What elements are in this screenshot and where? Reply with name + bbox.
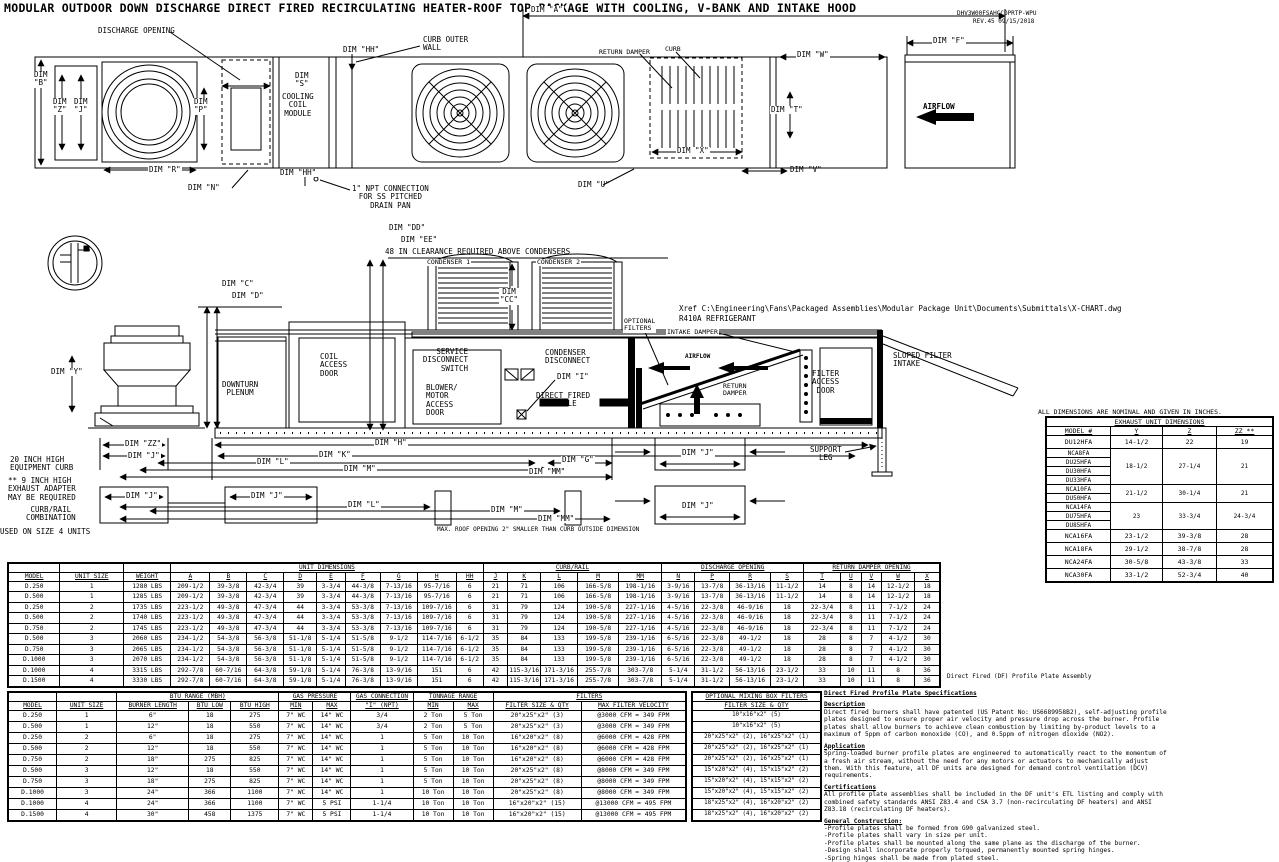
table-cell: 6-1/2 xyxy=(456,644,483,655)
table-cell: 30-1/4 xyxy=(1163,485,1217,503)
table-cell: 109-7/16 xyxy=(417,623,456,634)
table-cell: 7 xyxy=(861,655,882,666)
sloped-filter-intake xyxy=(883,336,1018,396)
table-cell: 79 xyxy=(508,623,541,634)
table-cell: 190-5/8 xyxy=(578,613,619,624)
table-row: 15"x20"x2" (4), 15"x15"x2" (2) xyxy=(693,787,821,798)
table-cell: 239-1/16 xyxy=(619,634,662,645)
table-cell: 18 xyxy=(771,613,804,624)
exhaust-fan-elevation xyxy=(88,326,205,428)
table-cell: 8 xyxy=(841,623,862,634)
table-row: 15"x20"x2" (4), 15"x15"x2" (2) xyxy=(693,776,821,787)
table-cell: 3 xyxy=(57,776,117,787)
table-cell: 227-1/16 xyxy=(619,602,662,613)
column-header: A xyxy=(171,573,210,582)
table-cell: 33-1/2 xyxy=(1111,569,1163,582)
column-group-header: FILTERS xyxy=(493,693,685,702)
table-cell: 1 xyxy=(351,776,413,787)
table-cell: 28 xyxy=(804,644,841,655)
column-header: MAX xyxy=(453,701,493,710)
table-cell: @8000 CFM = 349 FPM xyxy=(581,765,685,776)
table-cell: 6 xyxy=(456,665,483,676)
table-cell: 24" xyxy=(117,798,189,809)
table-cell: 166-5/8 xyxy=(578,581,619,592)
table-cell: 23-1/2 xyxy=(771,676,804,687)
column-header: F xyxy=(345,573,380,582)
column-header: MIN xyxy=(413,701,453,710)
table-cell: 14 xyxy=(861,581,882,592)
table-cell: 33 xyxy=(804,665,841,676)
table-cell: 49-3/8 xyxy=(210,623,247,634)
table-cell: 2065 LBS xyxy=(124,644,171,655)
table-cell: 114-7/16 xyxy=(417,644,456,655)
model-cell: DU25HFA xyxy=(1047,458,1111,467)
table-cell: 239-1/16 xyxy=(619,655,662,666)
table-cell: 51-1/8 xyxy=(284,655,317,666)
table-cell: 3330 LBS xyxy=(124,676,171,687)
table-cell: 42 xyxy=(483,665,508,676)
table-cell: 5 Ton xyxy=(413,743,453,754)
column-group-header: GAS PRESSURE xyxy=(279,693,351,702)
table-cell: D.250 xyxy=(9,581,60,592)
column-header: MODEL xyxy=(9,573,60,582)
table-cell: 44-3/8 xyxy=(345,592,380,603)
table-cell: 9-1/2 xyxy=(380,634,417,645)
table-cell: @6000 CFM = 428 FPM xyxy=(581,732,685,743)
table-cell: 4-5/16 xyxy=(662,613,695,624)
table-cell: 42-3/4 xyxy=(247,581,284,592)
table-cell: 22-3/8 xyxy=(695,613,730,624)
table-cell: 234-1/2 xyxy=(171,655,210,666)
table-cell: 23-1/2 xyxy=(771,665,804,676)
table-cell: 7-13/16 xyxy=(380,592,417,603)
table-cell: 46-9/16 xyxy=(730,602,771,613)
curb-dimensions xyxy=(100,438,868,480)
table-cell: D.500 xyxy=(9,721,57,732)
model-cell: NCA8FA xyxy=(1047,449,1111,458)
table-cell: 31-1/2 xyxy=(695,676,730,687)
table-cell: 10 Ton xyxy=(453,754,493,765)
table-cell: 151 xyxy=(417,665,456,676)
table-row: D.75032065 LBS234-1/254-3/856-3/851-1/85… xyxy=(9,644,940,655)
table-cell: 124 xyxy=(541,623,578,634)
table-row: NCA30FA33-1/252-3/440 xyxy=(1047,569,1273,582)
table-cell: 18 xyxy=(189,732,231,743)
table-cell: 15"x20"x2" (4), 15"x15"x2" (2) xyxy=(693,776,821,787)
table-cell: D.1000 xyxy=(9,665,60,676)
table-cell: 21 xyxy=(1217,449,1273,485)
table-cell: 18 xyxy=(771,623,804,634)
table-row: 18"x25"x2" (4), 16"x20"x2" (2) xyxy=(693,798,821,809)
table-cell: 7" WC xyxy=(279,732,313,743)
table-cell: 30-5/8 xyxy=(1111,556,1163,569)
table-cell: 36 xyxy=(914,676,939,687)
table-cell: D.1000 xyxy=(9,655,60,666)
condenser-disconnect xyxy=(521,369,534,380)
table-cell: 3-3/4 xyxy=(317,602,346,613)
table-cell: 24 xyxy=(914,623,939,634)
table-cell: 16"x20"x2" (15) xyxy=(493,798,581,809)
table-cell: D.500 xyxy=(9,634,60,645)
specs-application-heading: Application xyxy=(824,743,1169,750)
table-row: NCA18FA29-1/238-7/828 xyxy=(1047,543,1273,556)
blower-access-door xyxy=(413,350,501,424)
table-cell: 56-3/8 xyxy=(247,655,284,666)
table-cell: 4-1/2 xyxy=(882,634,915,645)
table-cell: 275 xyxy=(231,732,279,743)
model-cell: NCA18FA xyxy=(1047,543,1111,556)
table-title: EXHAUST UNIT DIMENSIONS xyxy=(1047,418,1273,427)
specs-application-body: Spring-loaded burner profile plates are … xyxy=(824,750,1169,780)
table-cell: 1-1/4 xyxy=(351,809,413,820)
table-row: D.500212"185507" WC14" WC15 Ton10 Ton16"… xyxy=(9,743,686,754)
table-cell: 11 xyxy=(861,665,882,676)
cad-sheet: MODULAR OUTDOOR DOWN DISCHARGE DIRECT FI… xyxy=(0,0,1279,843)
table-cell: 292-7/8 xyxy=(171,676,210,687)
table-cell: 5 Ton xyxy=(413,754,453,765)
table-cell: 39-3/8 xyxy=(210,581,247,592)
table-cell: 54-3/8 xyxy=(210,644,247,655)
model-cell: DU50HFA xyxy=(1047,494,1111,503)
table-cell: 60-7/16 xyxy=(210,676,247,687)
table-cell: 9-1/2 xyxy=(380,644,417,655)
table-cell: 14" WC xyxy=(313,721,351,732)
table-cell: 114-7/16 xyxy=(417,655,456,666)
table-cell: 9-1/2 xyxy=(380,655,417,666)
profile-assembly-caption: Direct Fired (DF) Profile Plate Assembly xyxy=(947,674,1092,681)
table-cell: 4 xyxy=(60,676,124,687)
table-cell: 18 xyxy=(914,592,939,603)
table-cell: 22 xyxy=(1163,436,1217,449)
table-cell: 209-1/2 xyxy=(171,581,210,592)
model-cell: DU85HFA xyxy=(1047,521,1111,530)
table-cell: 227-1/16 xyxy=(619,623,662,634)
column-header: WEIGHT xyxy=(124,573,171,582)
table-cell: 1 xyxy=(351,743,413,754)
table-row: D.750318"2758257" WC14" WC15 Ton10 Ton20… xyxy=(9,776,686,787)
table-cell: 35 xyxy=(483,634,508,645)
table-cell: 49-1/2 xyxy=(730,655,771,666)
column-header: UNIT SIZE xyxy=(57,701,117,710)
table-cell: 7" WC xyxy=(279,743,313,754)
table-cell: 115-3/16 xyxy=(508,665,541,676)
table-cell: 10 Ton xyxy=(453,765,493,776)
table-cell: D.750 xyxy=(9,776,57,787)
table-cell: 84 xyxy=(508,644,541,655)
table-cell: 255-7/8 xyxy=(578,676,619,687)
column-header: R xyxy=(730,573,771,582)
table-cell: 95-7/16 xyxy=(417,592,456,603)
table-cell: 275 xyxy=(189,776,231,787)
table-cell: 16"x20"x2" (8) xyxy=(493,743,581,754)
table-cell: 28 xyxy=(1217,543,1273,556)
table-cell: 10"x16"x2" (5) xyxy=(693,721,821,732)
right-wall xyxy=(877,330,883,428)
table-cell: 18 xyxy=(771,634,804,645)
table-cell: 14 xyxy=(804,592,841,603)
table-cell: 234-1/2 xyxy=(171,634,210,645)
table-cell: 6-5/16 xyxy=(662,644,695,655)
table-cell: 44 xyxy=(284,623,317,634)
table-cell: 109-7/16 xyxy=(417,602,456,613)
table-cell: 1 xyxy=(57,710,117,721)
column-header: T xyxy=(804,573,841,582)
table-cell: 23-1/2 xyxy=(1111,530,1163,543)
table-cell: 49-1/2 xyxy=(730,634,771,645)
table-cell: 22-3/8 xyxy=(695,602,730,613)
supply-fan-1-plan xyxy=(412,64,509,162)
table-cell: 28 xyxy=(804,634,841,645)
column-header: J xyxy=(483,573,508,582)
table-cell: 39-3/8 xyxy=(210,592,247,603)
table-cell: 36 xyxy=(914,665,939,676)
table-cell: 20"x25"x2" (2), 16"x25"x2" (1) xyxy=(693,732,821,743)
table-row: 20"x25"x2" (2), 16"x25"x2" (1) xyxy=(693,732,821,743)
table-cell: 7-1/2 xyxy=(882,602,915,613)
airflow-arrow-plan xyxy=(916,109,974,125)
table-cell: 6-5/16 xyxy=(662,634,695,645)
table-cell: 151 xyxy=(417,676,456,687)
table-cell: @13000 CFM = 495 FPM xyxy=(581,798,685,809)
table-cell: 22-3/8 xyxy=(695,634,730,645)
table-cell: 24 xyxy=(914,602,939,613)
column-header: "I" (NPT) xyxy=(351,701,413,710)
table-cell: 13-9/16 xyxy=(380,665,417,676)
table-cell: 28 xyxy=(1217,530,1273,543)
column-header: MODEL # xyxy=(1047,427,1111,436)
table-cell: 5 Ton xyxy=(453,721,493,732)
specs-title: Direct Fired Profile Plate Specification… xyxy=(824,690,1169,697)
column-header: C xyxy=(247,573,284,582)
table-cell: 7" WC xyxy=(279,710,313,721)
table-cell: 18"x25"x2" (4), 16"x20"x2" (2) xyxy=(693,798,821,809)
table-cell: 2 xyxy=(60,602,124,613)
service-disconnect-switch xyxy=(505,369,518,380)
table-cell: 2 xyxy=(60,613,124,624)
table-cell: 1285 LBS xyxy=(124,592,171,603)
column-header: BTU LOW xyxy=(189,701,231,710)
table-cell: D.1000 xyxy=(9,798,57,809)
table-cell: 12" xyxy=(117,743,189,754)
table-cell: 40 xyxy=(1217,569,1273,582)
table-cell: 59-1/8 xyxy=(284,676,317,687)
table-cell: D.750 xyxy=(9,754,57,765)
table-cell: 223-1/2 xyxy=(171,602,210,613)
table-cell: 5 Ton xyxy=(413,765,453,776)
column-header: H xyxy=(417,573,456,582)
table-row: D.1000424"36611007" WC5 PSI1-1/410 Ton10… xyxy=(9,798,686,809)
table-cell: 47-3/4 xyxy=(247,613,284,624)
table-cell: 7" WC xyxy=(279,809,313,820)
table-cell: 24" xyxy=(117,787,189,798)
table-cell: 550 xyxy=(231,765,279,776)
table-cell: 106 xyxy=(541,592,578,603)
table-cell: 3 xyxy=(57,765,117,776)
table-row: 10"x16"x2" (5) xyxy=(693,710,821,721)
table-row: D.25021735 LBS223-1/249-3/847-3/4443-3/4… xyxy=(9,602,940,613)
table-cell: 4 xyxy=(57,809,117,820)
return-damper-elevation xyxy=(655,404,765,428)
column-header: MIN xyxy=(279,701,313,710)
table-cell: 1735 LBS xyxy=(124,602,171,613)
table-cell: 52-3/4 xyxy=(1163,569,1217,582)
table-cell: 53-3/8 xyxy=(345,613,380,624)
table-cell: 1-1/4 xyxy=(351,798,413,809)
intake-hood-plan xyxy=(905,55,1015,168)
burner-block-left xyxy=(540,399,568,406)
section-divider xyxy=(628,338,635,428)
column-group-header xyxy=(60,564,124,573)
table-cell: 27-1/4 xyxy=(1163,449,1217,485)
column-header: M xyxy=(578,573,619,582)
table-cell: 16"x20"x2" (8) xyxy=(493,754,581,765)
table-cell: 56-3/8 xyxy=(247,634,284,645)
table-cell: 8 xyxy=(841,602,862,613)
table-cell: 7 xyxy=(861,634,882,645)
table-cell: 1740 LBS xyxy=(124,613,171,624)
column-header: K xyxy=(508,573,541,582)
table-cell: D.500 xyxy=(9,592,60,603)
table-cell: 10"x16"x2" (5) xyxy=(693,710,821,721)
curb-rail-dimensions xyxy=(100,486,785,525)
table-cell: 51-5/8 xyxy=(345,634,380,645)
table-row: D.100043315 LBS292-7/860-7/1664-3/859-1/… xyxy=(9,665,940,676)
elevation-view xyxy=(48,236,1018,525)
table-cell: 11 xyxy=(861,676,882,687)
table-cell: 4-5/16 xyxy=(662,602,695,613)
table-cell: 30" xyxy=(117,809,189,820)
column-header: N xyxy=(662,573,695,582)
table-cell: 550 xyxy=(231,743,279,754)
table-cell: 6" xyxy=(117,710,189,721)
table-cell: 8 xyxy=(841,581,862,592)
column-group-header: BTU RANGE (MBH) xyxy=(117,693,279,702)
condenser-2 xyxy=(532,254,622,330)
table-cell: 51-1/8 xyxy=(284,644,317,655)
table-cell: @6000 CFM = 428 FPM xyxy=(581,743,685,754)
table-cell: 35 xyxy=(483,644,508,655)
burner-block-right xyxy=(600,399,628,406)
condenser-1 xyxy=(428,254,518,330)
table-row: D.500312"185507" WC14" WC15 Ton10 Ton20"… xyxy=(9,765,686,776)
table-cell: 292-7/8 xyxy=(171,665,210,676)
table-cell: 8 xyxy=(841,644,862,655)
table-cell: 3315 LBS xyxy=(124,665,171,676)
table-cell: 18" xyxy=(117,754,189,765)
table-cell: 14-1/2 xyxy=(1111,436,1163,449)
table-cell: 10 Ton xyxy=(413,787,453,798)
table-cell: 106 xyxy=(541,581,578,592)
table-cell: 3/4 xyxy=(351,721,413,732)
table-cell: 1 xyxy=(60,592,124,603)
table-cell: 1 xyxy=(351,754,413,765)
plan-view xyxy=(35,9,1015,190)
table-cell: 4-5/16 xyxy=(662,623,695,634)
table-cell: 8 xyxy=(882,665,915,676)
table-cell: 109-7/16 xyxy=(417,613,456,624)
column-header: V xyxy=(861,573,882,582)
specs-description-body: Direct fired burners shall have patented… xyxy=(824,709,1169,739)
table-cell: 19 xyxy=(1217,436,1273,449)
table-row: D.50032060 LBS234-1/254-3/856-3/851-1/85… xyxy=(9,634,940,645)
table-cell: 16"x20"x2" (8) xyxy=(493,732,581,743)
table-title: FILTER SIZE & QTY xyxy=(693,701,821,710)
support-leg xyxy=(845,428,892,476)
column-group-header: TONNAGE RANGE xyxy=(413,693,493,702)
column-group-header: CURB/RAIL xyxy=(483,564,662,573)
table-cell: 30 xyxy=(914,634,939,645)
table-cell: 56-13/16 xyxy=(730,676,771,687)
table-row: D.500112"185507" WC14" WC3/42 Ton5 Ton20… xyxy=(9,721,686,732)
table-cell: D.1000 xyxy=(9,787,57,798)
table-cell: 275 xyxy=(189,754,231,765)
table-cell: 18" xyxy=(117,776,189,787)
table-cell: 22-3/4 xyxy=(804,613,841,624)
table-cell: 36-13/16 xyxy=(730,581,771,592)
table-cell: 11 xyxy=(861,623,882,634)
table-cell: 3 xyxy=(60,655,124,666)
table-cell: 13-7/8 xyxy=(695,592,730,603)
model-cell: NCA14FA xyxy=(1047,503,1111,512)
table-cell: 7" WC xyxy=(279,787,313,798)
table-cell: D.250 xyxy=(9,602,60,613)
table-cell: 76-3/8 xyxy=(345,676,380,687)
column-header: MM xyxy=(619,573,662,582)
column-header: MAX FILTER VELOCITY xyxy=(581,701,685,710)
table-row: 15"x20"x2" (4), 15"x15"x2" (2) xyxy=(693,765,821,776)
table-cell: 28 xyxy=(804,655,841,666)
table-cell: 47-3/4 xyxy=(247,602,284,613)
table-cell: 20"x25"x2" (8) xyxy=(493,776,581,787)
table-cell: @3000 CFM = 349 FPM xyxy=(581,710,685,721)
table-cell: 3-9/16 xyxy=(662,581,695,592)
table-cell: 11-1/2 xyxy=(771,581,804,592)
table-cell: 2 xyxy=(57,754,117,765)
table-cell: 95-7/16 xyxy=(417,581,456,592)
table-cell: @13000 CFM = 495 FPM xyxy=(581,809,685,820)
table-cell: 7" WC xyxy=(279,721,313,732)
table-cell: 171-3/16 xyxy=(541,676,578,687)
table-cell: 4-1/2 xyxy=(882,644,915,655)
table-cell: 8 xyxy=(841,634,862,645)
table-row: D.50021740 LBS223-1/249-3/847-3/4443-3/4… xyxy=(9,613,940,624)
table-cell: 33 xyxy=(1217,556,1273,569)
table-cell: 22-3/8 xyxy=(695,644,730,655)
table-cell: 234-1/2 xyxy=(171,644,210,655)
table-cell: 13-9/16 xyxy=(380,676,417,687)
table-cell: 14" WC xyxy=(313,743,351,754)
table-cell: 114-7/16 xyxy=(417,634,456,645)
column-group-header xyxy=(9,693,57,702)
table-cell: 20"x25"x2" (3) xyxy=(493,710,581,721)
table-cell: 3-3/4 xyxy=(317,613,346,624)
unit-dimensions-table: UNIT DIMENSIONSCURB/RAILDISCHARGE OPENIN… xyxy=(8,563,940,687)
table-cell: 46-9/16 xyxy=(730,623,771,634)
model-cell: DU12HFA xyxy=(1047,436,1111,449)
table-row: NCA8FA18-1/227-1/421 xyxy=(1047,449,1273,458)
table-cell: 458 xyxy=(189,809,231,820)
table-cell: 49-3/8 xyxy=(210,613,247,624)
table-cell: 21-1/2 xyxy=(1111,485,1163,503)
table-cell: 24-3/4 xyxy=(1217,503,1273,530)
table-cell: 64-3/8 xyxy=(247,665,284,676)
table-cell: 2 xyxy=(57,732,117,743)
table-cell: 3 xyxy=(60,644,124,655)
column-header: E xyxy=(317,573,346,582)
table-cell: 79 xyxy=(508,613,541,624)
table-row: D.75021745 LBS223-1/249-3/847-3/4443-3/4… xyxy=(9,623,940,634)
table-cell: 7-13/16 xyxy=(380,613,417,624)
